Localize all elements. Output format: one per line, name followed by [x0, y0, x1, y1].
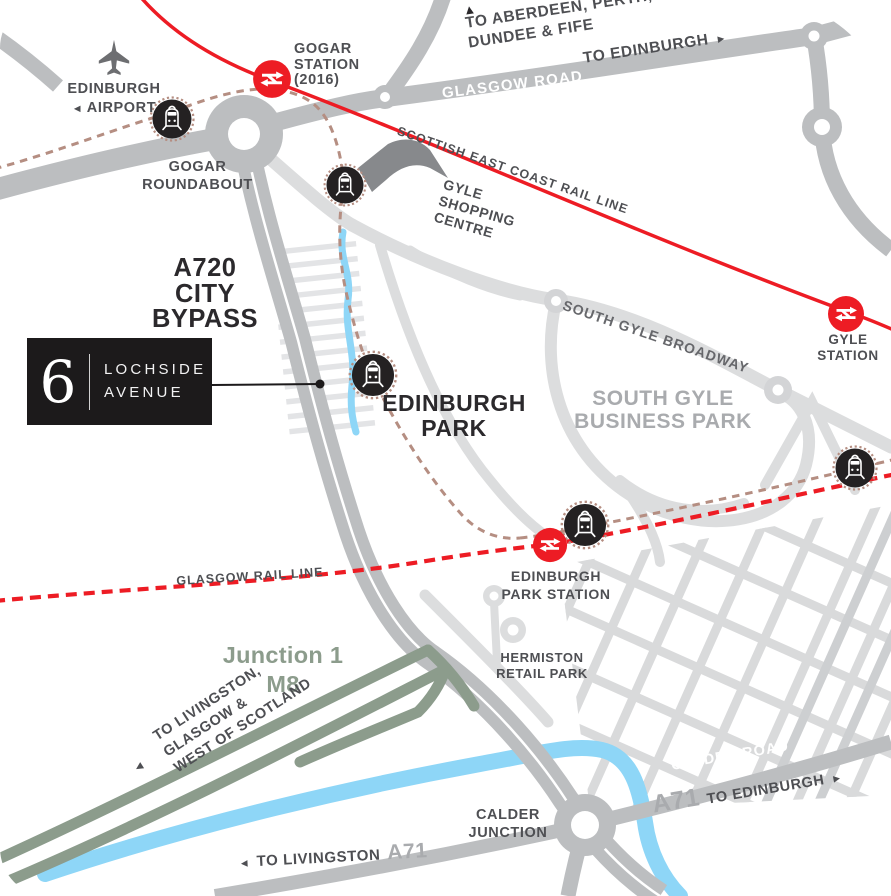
- rail-logo-gyle-icon: [828, 296, 864, 332]
- plaque-number: 6: [27, 353, 89, 411]
- plaque-name-line1: LOCHSIDE: [104, 359, 206, 382]
- edinburgh-park-label: EDINBURGH PARK: [372, 391, 536, 441]
- a720-line2: CITY: [147, 282, 263, 308]
- gyle-station-line1: GYLE: [810, 332, 886, 348]
- airport-line2-text: AIRPORT: [87, 100, 156, 116]
- a720-line1: A720: [147, 256, 263, 282]
- gogar-station-line3: (2016): [294, 73, 360, 89]
- edinburgh-park-line2: PARK: [372, 416, 536, 441]
- rail-logo-gogar-icon: [253, 60, 291, 98]
- hermiston-retail-park-label: HERMISTON RETAIL PARK: [477, 650, 607, 681]
- rail-logo-edinburgh-park-icon: [533, 528, 567, 562]
- edinburgh-park-station-label: EDINBURGH PARK STATION: [486, 568, 626, 603]
- airport-arrow-icon: ◄: [72, 103, 83, 115]
- edinburgh-bottom-arrow-icon: ►: [830, 772, 843, 787]
- calder-junction-label: CALDER JUNCTION: [447, 807, 569, 842]
- sgbp-line2: BUSINESS PARK: [573, 410, 753, 433]
- airport-line2: ◄ AIRPORT: [46, 99, 182, 119]
- gogar-station-label: GOGAR STATION (2016): [294, 42, 360, 89]
- edinburgh-park-line1: EDINBURGH: [372, 391, 536, 416]
- hermiston-line1: HERMISTON: [477, 650, 607, 666]
- lochside-avenue-plaque: 6 LOCHSIDE AVENUE: [27, 338, 212, 425]
- a720-bypass-label: A720 CITY BYPASS: [147, 256, 263, 333]
- plaque-name-line2: AVENUE: [104, 382, 206, 405]
- location-map: g[data-name="m8-motorway"] path{stroke-w…: [0, 0, 891, 896]
- plaque-name: LOCHSIDE AVENUE: [90, 359, 206, 404]
- airplane-icon: [99, 40, 129, 75]
- edinburgh-airport-label: EDINBURGH ◄ AIRPORT: [46, 80, 182, 118]
- gyle-station-label: GYLE STATION: [810, 332, 886, 364]
- gogar-roundabout-line2: ROUNDABOUT: [135, 176, 260, 194]
- a720-line3: BYPASS: [147, 307, 263, 333]
- edinburgh-top-arrow-icon: ►: [715, 33, 728, 48]
- sgbp-line1: SOUTH GYLE: [573, 387, 753, 410]
- ep-station-line2: PARK STATION: [486, 586, 626, 604]
- calder-junction-line2: JUNCTION: [447, 825, 569, 843]
- south-gyle-business-park-label: SOUTH GYLE BUSINESS PARK: [573, 387, 753, 433]
- ep-station-line1: EDINBURGH: [486, 568, 626, 586]
- a71-west-shield-text: A71: [387, 838, 429, 865]
- livingston-a71-arrow-icon: ◄: [239, 857, 251, 871]
- tram-stop-gyle-icon: [325, 165, 366, 206]
- hermiston-line2: RETAIL PARK: [477, 666, 607, 682]
- gyle-station-line2: STATION: [810, 348, 886, 364]
- gogar-roundabout-line1: GOGAR: [135, 158, 260, 176]
- gogar-roundabout-label: GOGAR ROUNDABOUT: [135, 158, 260, 194]
- gogar-station-line1: GOGAR: [294, 42, 360, 58]
- road-corner-stub: [0, 34, 58, 86]
- airport-line1: EDINBURGH: [46, 80, 182, 99]
- gogar-station-line2: STATION: [294, 58, 360, 74]
- local-roads-layer: [258, 148, 891, 722]
- calder-junction-line1: CALDER: [447, 807, 569, 825]
